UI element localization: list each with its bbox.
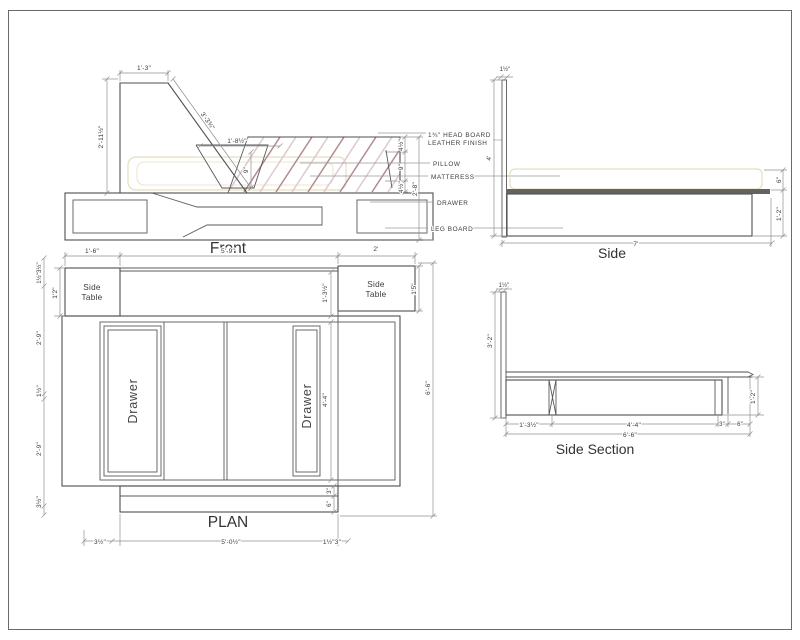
dim-plan-bottom-left: 3½"	[94, 538, 106, 546]
right-side-table-label-line1: Side	[367, 280, 385, 289]
dim-plan-overall-width: 6'-6"	[425, 381, 432, 395]
dim-plan-top-middle: 5'-9"	[221, 248, 235, 255]
dim-section-board-height: 3'-2"	[487, 334, 494, 348]
front-view: 1'-3" 2'-11½" 3'-3¾" 1'-8½" 9" 4½" 9" 4½…	[65, 65, 433, 257]
label-headboard-line2: LEATHER FINISH	[428, 140, 487, 147]
dim-side-length: 7'	[633, 241, 638, 248]
right-drawer-label: Drawer	[300, 383, 314, 428]
side-section-title: Side Section	[556, 441, 635, 457]
side-mattress-outline	[510, 169, 762, 189]
dim-side-base-height: 1'-2"	[776, 207, 783, 221]
plan-geometry	[62, 266, 415, 512]
dim-plan-drawer-length: 4'-4"	[322, 393, 329, 407]
dim-front-gap-bottom: 4½"	[397, 181, 405, 193]
dim-plan-left-middle: 1½"	[35, 385, 43, 397]
side-view: 1½" 4' 6" 1'-2" 7' Side	[486, 66, 787, 261]
dim-plan-footer-bottom: 6"	[327, 501, 333, 507]
dim-plan-gap-depth: 1'-3½"	[321, 283, 329, 303]
dim-plan-left-upper: 2'-9"	[36, 331, 43, 345]
plan-view: 1'-6" 5'-9" 2' 1½"3½" 1'2" 2'-9" 1½" 2'-…	[35, 246, 437, 546]
left-side-table-label-line1: Side	[83, 283, 101, 292]
dim-front-height: 2'-11½"	[97, 125, 105, 148]
dim-plan-top-left: 1'-6"	[85, 248, 99, 255]
dim-front-overall-height: 2'-8"	[412, 182, 419, 196]
section-dimensions	[490, 287, 764, 438]
dim-plan-footer-top: 3"	[327, 488, 333, 494]
left-side-table-label-line2: Table	[81, 293, 102, 302]
label-pillow: PILLOW	[433, 161, 461, 168]
dim-section-seg-leg: 3"	[719, 422, 725, 428]
cad-sheet: 1'-3" 2'-11½" 3'-3¾" 1'-8½" 9" 4½" 9" 4½…	[0, 0, 800, 640]
dim-plan-left-top: 1½"3½"	[36, 262, 43, 284]
dim-front-gap-top: 4½"	[397, 139, 405, 151]
dim-section-overall: 6'-6"	[623, 432, 637, 439]
dim-plan-bottom-right: 1½"3"	[323, 538, 342, 546]
label-leg-board: LEG BOARD	[431, 226, 473, 233]
dim-section-seg-drawer: 4'-4"	[627, 422, 641, 429]
dim-front-headboard-width: 1'-3"	[137, 65, 151, 72]
dim-front-pillow-height: 9"	[243, 166, 250, 173]
plan-title: PLAN	[208, 514, 249, 531]
callout-labels: 1¾" HEAD BOARD LEATHER FINISH PILLOW MAT…	[300, 132, 563, 233]
dim-side-board-height: 4'	[486, 155, 493, 160]
dim-side-board-thickness: 1½"	[500, 66, 511, 73]
dim-plan-left-bottom: 3½"	[35, 496, 43, 508]
side-title: Side	[598, 245, 626, 261]
side-dimensions	[490, 75, 787, 248]
dim-side-mattress-height: 6"	[776, 176, 783, 183]
dim-plan-bottom-middle: 5'-0½"	[221, 538, 241, 546]
left-drawer-label: Drawer	[126, 378, 140, 423]
side-section-view: 1½" 3'-2" 1'-3½" 4'-4" 3" 6" 6'-6" 1'-2"…	[487, 282, 764, 457]
dim-plan-top-right: 2'	[373, 246, 378, 253]
label-mattress: MATTERESS	[431, 174, 475, 181]
label-drawer: DRAWER	[437, 200, 468, 207]
right-side-table-label-line2: Table	[365, 290, 386, 299]
dim-front-mattress-thickness: 9"	[398, 163, 405, 170]
side-geometry	[502, 80, 770, 237]
dim-section-seg-overhang: 6"	[737, 422, 743, 428]
dim-front-pillow-width: 1'-8½"	[227, 137, 247, 145]
dim-plan-left-lower: 2'-9"	[36, 442, 43, 456]
dim-section-base-height: 1'-2"	[750, 390, 757, 404]
dim-plan-right-table-depth: 1'5"	[411, 283, 418, 295]
section-geometry	[501, 292, 753, 418]
dim-section-board-thickness: 1½"	[499, 282, 510, 289]
dim-plan-table-depth: 1'2"	[52, 287, 59, 299]
label-headboard-line1: 1¾" HEAD BOARD	[428, 132, 491, 139]
dim-section-seg-head: 1'-3½"	[519, 421, 539, 429]
